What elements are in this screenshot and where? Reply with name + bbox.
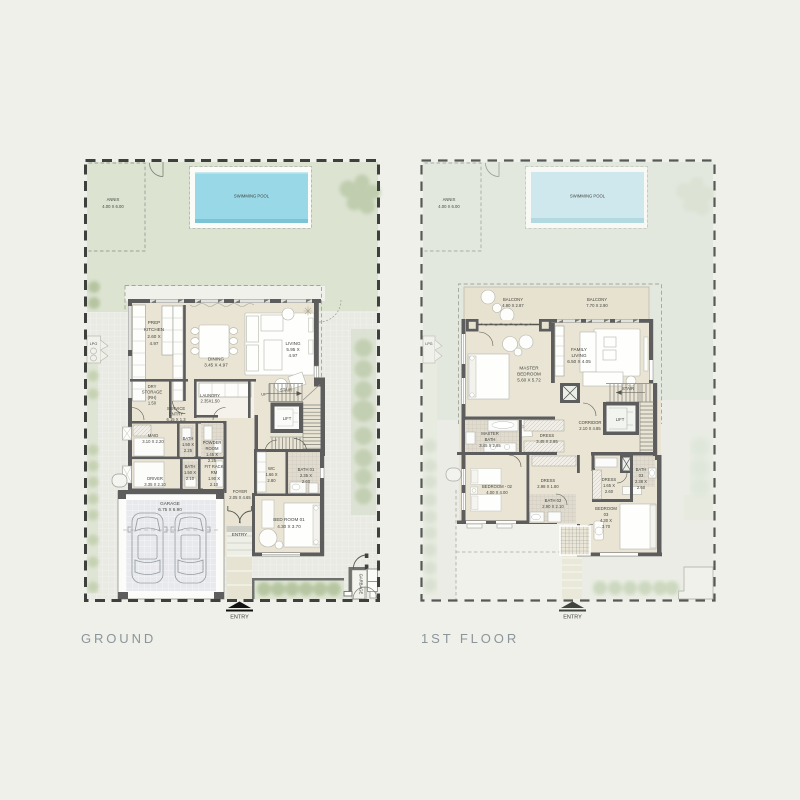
svg-text:2.10: 2.10	[186, 476, 195, 481]
svg-text:BALCONY: BALCONY	[587, 297, 607, 302]
svg-text:03: 03	[604, 512, 609, 517]
svg-text:1.65 X: 1.65 X	[603, 483, 615, 488]
svg-text:ANNIX: ANNIX	[107, 197, 120, 202]
svg-text:GROUND: GROUND	[81, 631, 156, 646]
svg-text:1.66 X: 1.66 X	[265, 472, 277, 477]
svg-text:FOYER: FOYER	[233, 489, 247, 494]
svg-text:ENTRY: ENTRY	[230, 615, 249, 621]
svg-text:GARBAGE: GARBAGE	[359, 574, 364, 595]
svg-text:4.90 X 2.87: 4.90 X 2.87	[502, 303, 524, 308]
svg-text:5.95 X: 5.95 X	[286, 347, 299, 352]
svg-text:2.60: 2.60	[637, 485, 646, 490]
svg-text:3.10 X 2.20: 3.10 X 2.20	[142, 439, 164, 444]
svg-text:BEDROOM - 02: BEDROOM - 02	[482, 484, 513, 489]
svg-text:BED ROOM 01: BED ROOM 01	[273, 517, 305, 522]
svg-text:3.35 X 2.10: 3.35 X 2.10	[144, 482, 166, 487]
svg-text:1.90 X: 1.90 X	[208, 476, 220, 481]
svg-text:MASTER: MASTER	[481, 431, 498, 436]
svg-text:LIVING: LIVING	[571, 353, 586, 358]
svg-text:2.60: 2.60	[302, 479, 311, 484]
svg-text:1.50 X: 1.50 X	[182, 442, 194, 447]
svg-text:6.50 X 4.05: 6.50 X 4.05	[567, 359, 591, 364]
svg-text:4.00 X 6.00: 4.00 X 6.00	[438, 204, 460, 209]
svg-text:DRY: DRY	[148, 384, 157, 389]
svg-text:LIVING: LIVING	[285, 341, 300, 346]
svg-text:RM: RM	[211, 470, 218, 475]
svg-text:2.35 X: 2.35 X	[300, 473, 312, 478]
svg-text:LIFT: LIFT	[283, 416, 292, 421]
svg-text:2.80: 2.80	[267, 478, 276, 483]
svg-text:BATH: BATH	[636, 467, 647, 472]
svg-text:2.90 X 2.10: 2.90 X 2.10	[542, 504, 564, 509]
svg-text:4.97: 4.97	[150, 341, 159, 346]
svg-text:4.97: 4.97	[289, 353, 298, 358]
svg-text:SWIMMING POOL: SWIMMING POOL	[234, 194, 270, 199]
svg-text:ENTRY: ENTRY	[232, 532, 248, 537]
svg-text:CORRIDOR: CORRIDOR	[579, 420, 602, 425]
svg-text:LPG: LPG	[425, 342, 432, 346]
svg-text:MASTER: MASTER	[519, 366, 539, 371]
svg-text:BALCONY: BALCONY	[503, 297, 523, 302]
svg-text:6.15 X 1.3: 6.15 X 1.3	[166, 417, 186, 422]
svg-text:BATH 02: BATH 02	[545, 498, 562, 503]
svg-text:6.75 X 6.90: 6.75 X 6.90	[158, 507, 182, 512]
svg-text:ENTRY: ENTRY	[563, 615, 582, 621]
svg-text:7.70 X 2.90: 7.70 X 2.90	[586, 303, 608, 308]
svg-text:5.60 X 5.72: 5.60 X 5.72	[517, 378, 541, 383]
svg-text:4.30 X: 4.30 X	[600, 518, 612, 523]
svg-text:SERVICE: SERVICE	[167, 406, 186, 411]
svg-text:4.30 X 3.70: 4.30 X 3.70	[277, 524, 301, 529]
svg-text:1ST FLOOR: 1ST FLOOR	[421, 631, 519, 646]
svg-text:FAMILY: FAMILY	[571, 347, 587, 352]
svg-text:GARAGE: GARAGE	[160, 501, 180, 506]
svg-text:KITCHEN: KITCHEN	[144, 327, 164, 332]
svg-text:ROOM: ROOM	[205, 446, 219, 451]
svg-text:BATH: BATH	[185, 464, 196, 469]
svg-text:LAUNDRY: LAUNDRY	[200, 393, 220, 398]
svg-text:3.45 X 2.65: 3.45 X 2.65	[536, 439, 558, 444]
svg-text:BEDROOM: BEDROOM	[595, 506, 617, 511]
svg-text:BEDROOM: BEDROOM	[517, 372, 541, 377]
svg-text:1.50: 1.50	[148, 401, 157, 406]
svg-text:BATH 01: BATH 01	[298, 467, 315, 472]
svg-text:SWIMMING POOL: SWIMMING POOL	[570, 194, 606, 199]
svg-text:2.10 X 4.85: 2.10 X 4.85	[579, 426, 601, 431]
svg-text:LIFT: LIFT	[616, 417, 625, 422]
svg-text:1.50 X: 1.50 X	[184, 470, 196, 475]
svg-text:PREP: PREP	[148, 320, 161, 325]
svg-text:ENTRY: ENTRY	[169, 412, 183, 417]
svg-text:BATH: BATH	[183, 436, 194, 441]
svg-text:2.35X1.50: 2.35X1.50	[200, 399, 220, 404]
svg-text:3.45 X 2.85: 3.45 X 2.85	[479, 443, 501, 448]
svg-text:3.45 X 4.97: 3.45 X 4.97	[204, 363, 228, 368]
svg-text:DRESS: DRESS	[540, 433, 555, 438]
svg-text:2.10: 2.10	[210, 482, 219, 487]
svg-text:1.45 X: 1.45 X	[206, 452, 218, 457]
svg-text:2.38 X: 2.38 X	[635, 479, 647, 484]
svg-text:BATH: BATH	[485, 437, 496, 442]
svg-text:2.60 X: 2.60 X	[147, 334, 160, 339]
svg-text:ANNIX: ANNIX	[443, 197, 456, 202]
svg-text:(RH): (RH)	[148, 395, 157, 400]
svg-text:DRESS: DRESS	[541, 478, 556, 483]
svg-text:FIT RACK: FIT RACK	[204, 464, 223, 469]
svg-text:2.05 X 4.65: 2.05 X 4.65	[229, 495, 251, 500]
svg-text:03: 03	[639, 473, 644, 478]
svg-text:LPG: LPG	[90, 342, 98, 346]
svg-text:WC: WC	[268, 466, 275, 471]
svg-text:DRESS: DRESS	[602, 477, 617, 482]
svg-text:2.60: 2.60	[605, 489, 614, 494]
svg-text:MAID: MAID	[148, 433, 158, 438]
svg-text:DINING: DINING	[208, 357, 225, 362]
svg-text:DRIVER: DRIVER	[147, 476, 163, 481]
svg-text:POWDER: POWDER	[203, 440, 222, 445]
svg-text:2.25: 2.25	[208, 458, 217, 463]
svg-text:STAIR: STAIR	[622, 386, 634, 391]
svg-text:UP: UP	[261, 392, 267, 397]
svg-text:3.70: 3.70	[602, 524, 611, 529]
svg-text:4.00 X 4.00: 4.00 X 4.00	[486, 490, 508, 495]
svg-text:STORAGE: STORAGE	[142, 390, 163, 395]
svg-text:4.00 X 6.00: 4.00 X 6.00	[102, 204, 124, 209]
svg-text:2.25: 2.25	[184, 448, 193, 453]
svg-text:STAIR: STAIR	[280, 388, 292, 393]
svg-text:2.98 X 1.80: 2.98 X 1.80	[537, 484, 559, 489]
